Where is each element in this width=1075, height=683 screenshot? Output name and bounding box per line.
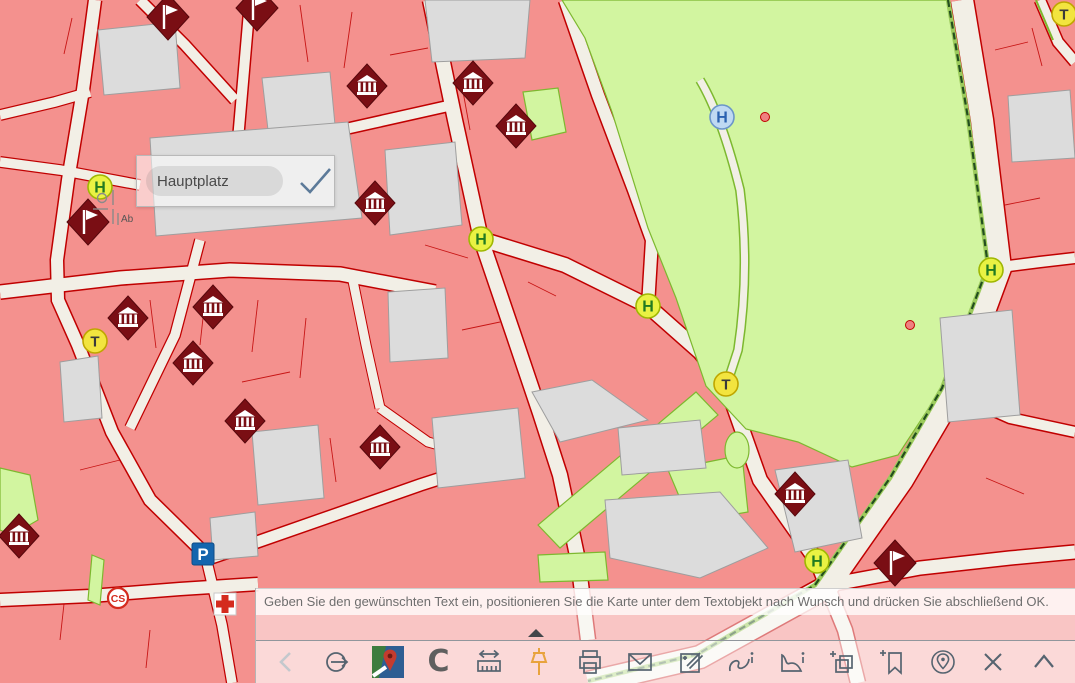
marker-dot (906, 321, 915, 330)
pushpin-icon (524, 646, 554, 678)
svg-text:T: T (721, 377, 730, 394)
svg-text:H: H (716, 110, 728, 127)
marker-taxi: T (714, 372, 738, 396)
svg-text:Ab: Ab (121, 214, 134, 225)
locate-button[interactable] (925, 644, 961, 680)
instruction-message: Geben Sie den gewünschten Text ein, posi… (256, 588, 1075, 615)
globe-pin-icon (928, 647, 958, 677)
panel-grip (256, 615, 1075, 640)
sign-out-icon (323, 647, 353, 677)
marker-taxi: T (83, 329, 107, 353)
svg-text:T: T (1059, 7, 1068, 24)
toolbar: C (256, 641, 1075, 683)
curve-info-icon (725, 647, 757, 677)
svg-text:H: H (642, 299, 654, 316)
envelope-icon (625, 647, 655, 677)
marker-taxi: T (1052, 2, 1075, 26)
close-button[interactable] (975, 644, 1011, 680)
printer-icon (575, 647, 605, 677)
collapse-button[interactable] (1026, 644, 1062, 680)
text-annotation-popup: Hauptplatz (136, 155, 335, 207)
letter-c-icon: C (428, 647, 450, 677)
close-x-icon (978, 647, 1008, 677)
map-application-window: HHHHHHTTTPCSAb Hauptplatz Geben Sie den … (0, 0, 1075, 683)
svg-text:H: H (811, 554, 823, 571)
marker-parking: P (192, 543, 214, 565)
basemap-button[interactable] (370, 644, 406, 680)
svg-text:H: H (475, 232, 487, 249)
annotation-text-value: Hauptplatz (157, 173, 229, 190)
sign-out-button[interactable] (320, 644, 356, 680)
map-thumbnail-icon (372, 646, 404, 678)
pin-button[interactable] (521, 644, 557, 680)
measure-button[interactable] (471, 644, 507, 680)
edit-square-icon (676, 647, 706, 677)
back-button[interactable] (269, 644, 305, 680)
marker-stop: H (469, 227, 493, 251)
marker-stop: H (88, 175, 112, 199)
marker-carsharing: CS (108, 588, 128, 608)
edit-button[interactable] (673, 644, 709, 680)
area-info-button[interactable] (774, 644, 810, 680)
svg-text:H: H (985, 263, 997, 280)
marker-stop: H (636, 294, 660, 318)
marker-dot (761, 113, 770, 122)
marker-first_aid (214, 593, 236, 615)
polygon-info-icon (776, 647, 808, 677)
print-button[interactable] (572, 644, 608, 680)
bottom-panel: Geben Sie den gewünschten Text ein, posi… (255, 588, 1075, 683)
copyright-button[interactable]: C (421, 644, 457, 680)
annotation-text-input[interactable]: Hauptplatz (146, 166, 283, 196)
add-layers-button[interactable] (824, 644, 860, 680)
marker-stop: H (979, 258, 1003, 282)
layers-plus-icon (827, 647, 857, 677)
marker-stop: H (805, 549, 829, 573)
panel-expand-arrow-icon[interactable] (528, 629, 544, 637)
add-bookmark-button[interactable] (874, 644, 910, 680)
svg-text:CS: CS (111, 593, 126, 605)
chevron-left-icon (272, 647, 302, 677)
svg-text:P: P (197, 545, 208, 564)
line-info-button[interactable] (723, 644, 759, 680)
svg-text:T: T (90, 334, 99, 351)
bookmark-plus-icon (877, 647, 907, 677)
ruler-arrows-icon (473, 647, 505, 677)
chevron-up-icon (1029, 647, 1059, 677)
email-button[interactable] (622, 644, 658, 680)
marker-stop_blue: H (710, 105, 734, 129)
confirm-check-icon[interactable] (297, 164, 334, 198)
map-canvas[interactable]: HHHHHHTTTPCSAb (0, 0, 1075, 683)
